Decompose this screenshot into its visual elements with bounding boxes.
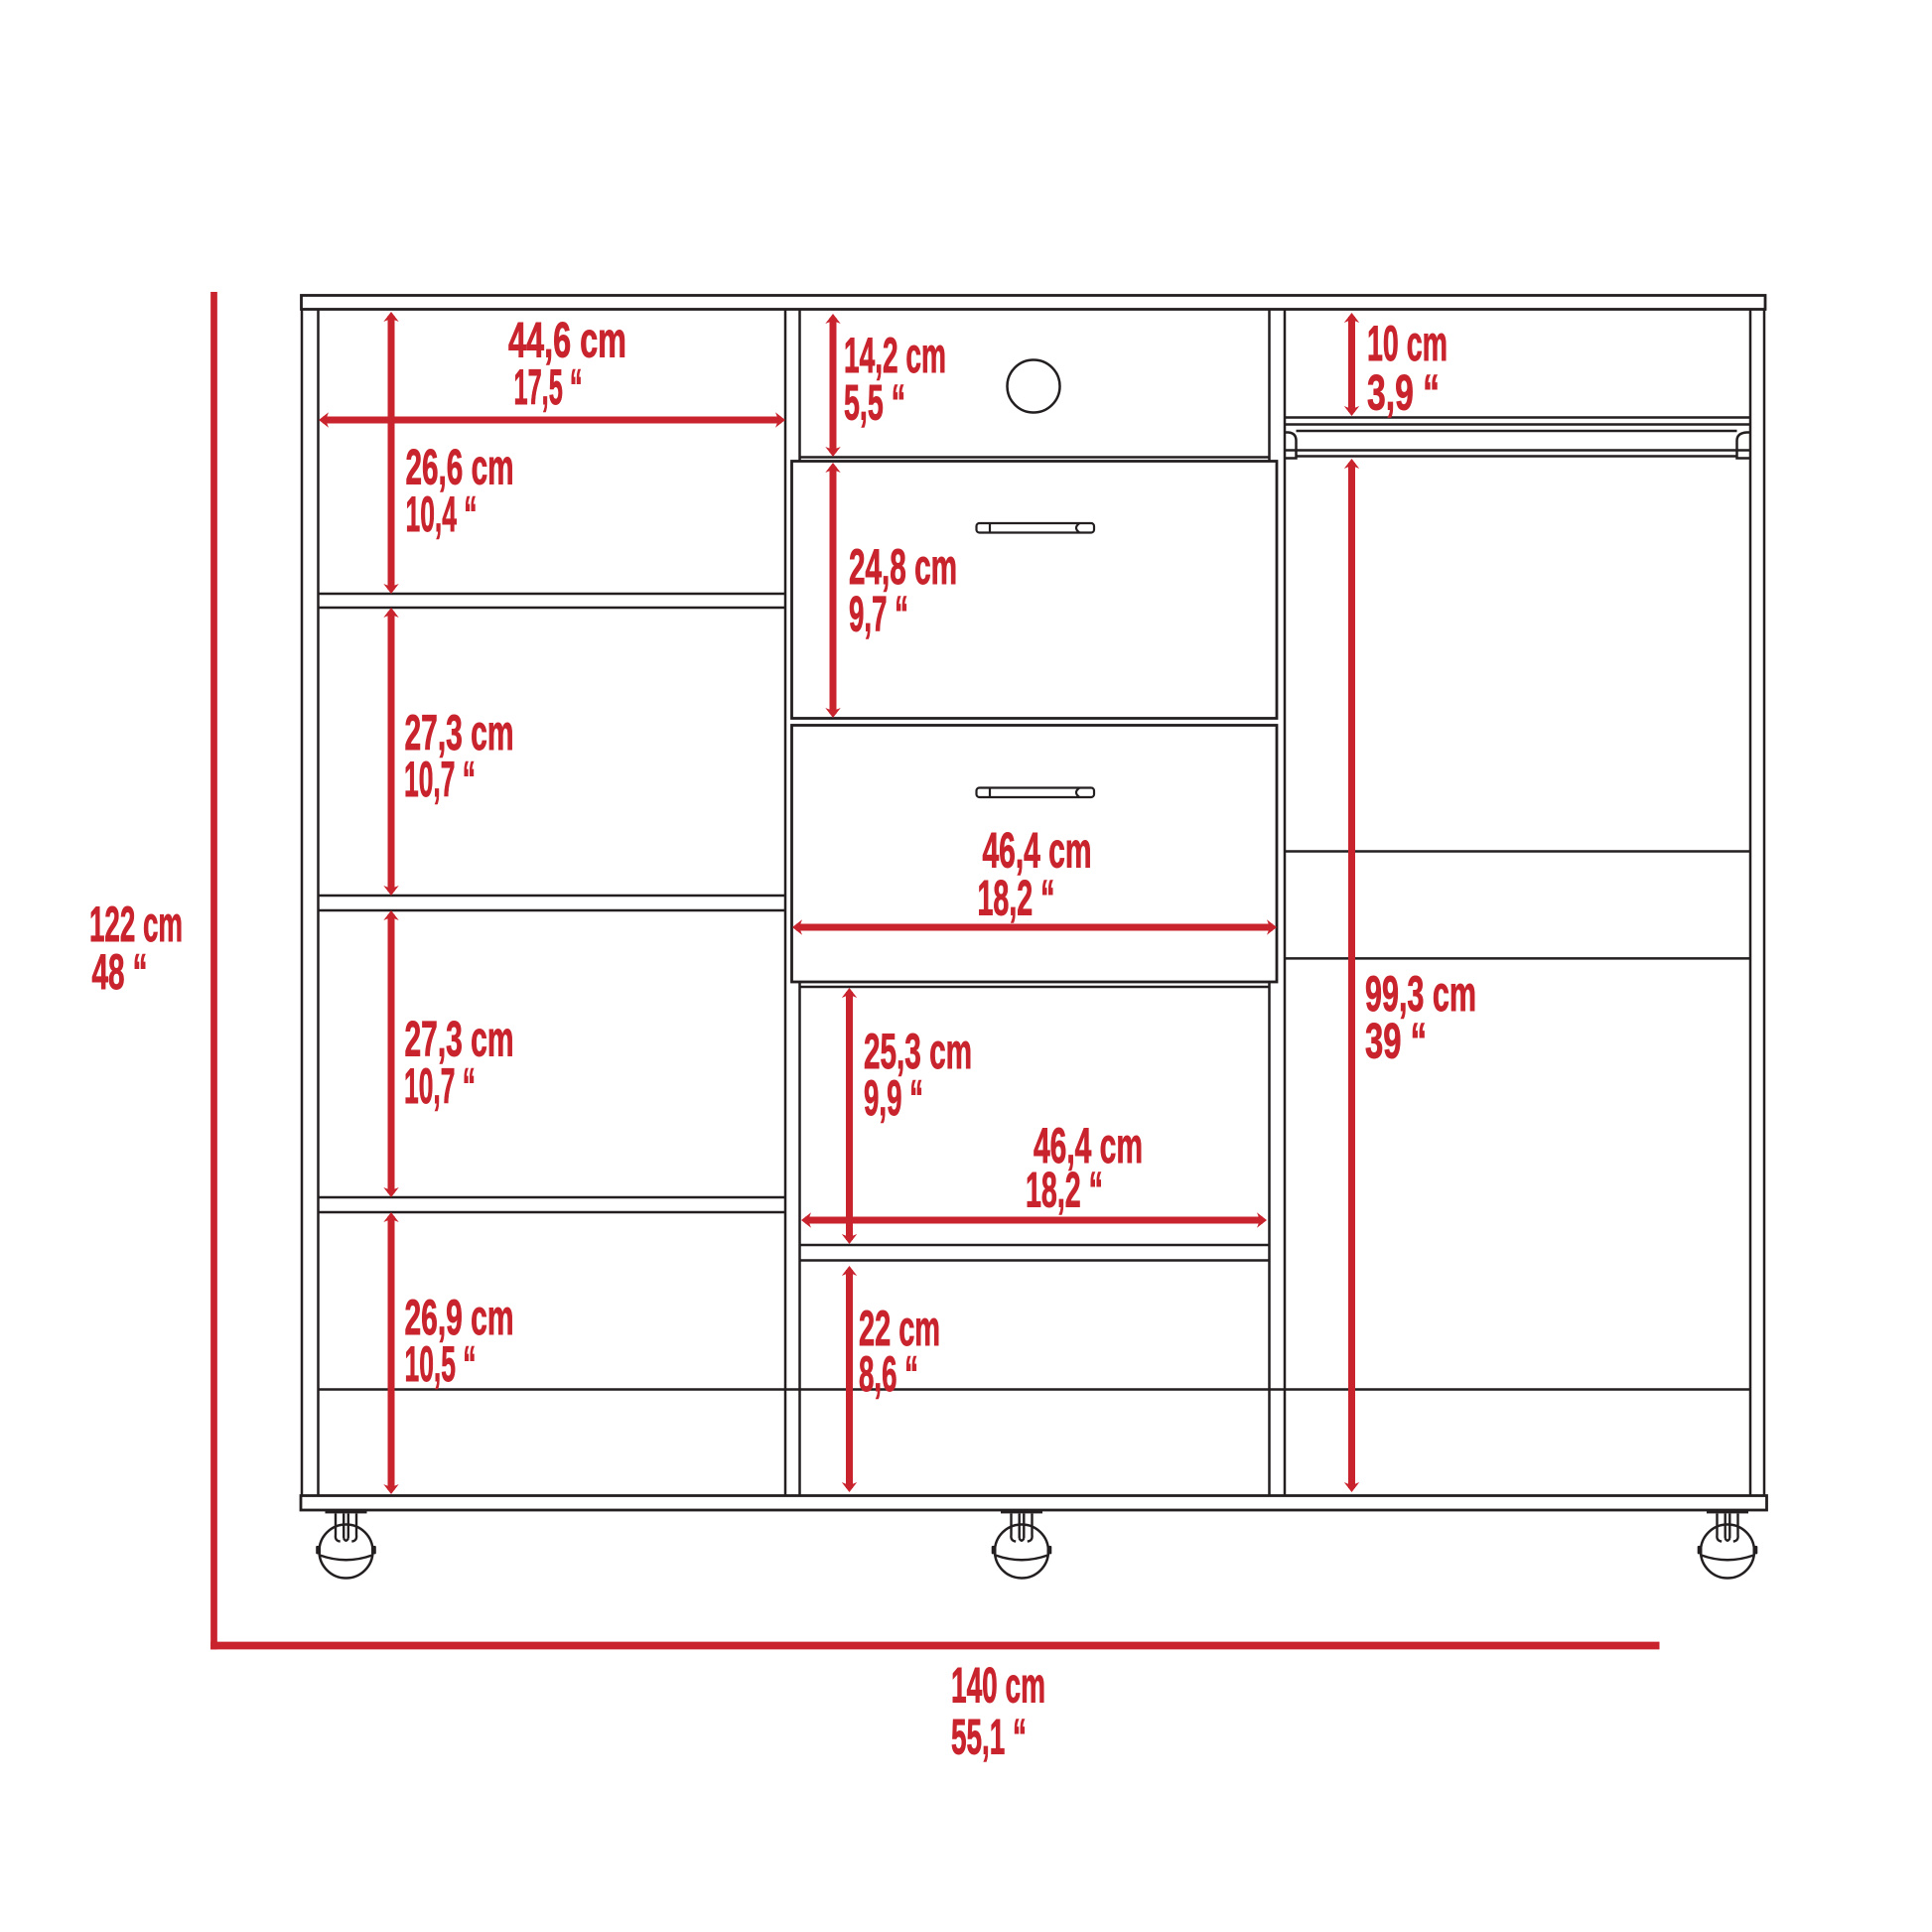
svg-text:5,5 “: 5,5 “ — [844, 374, 905, 431]
svg-text:55,1 “: 55,1 “ — [951, 1709, 1027, 1765]
svg-text:10,4 “: 10,4 “ — [406, 485, 478, 542]
svg-text:10 cm: 10 cm — [1367, 315, 1448, 371]
svg-text:10,7 “: 10,7 “ — [404, 751, 476, 807]
svg-text:10,7 “: 10,7 “ — [404, 1057, 476, 1114]
svg-text:9,7 “: 9,7 “ — [849, 586, 908, 642]
svg-text:48 “: 48 “ — [92, 943, 148, 1000]
svg-text:3,9 “: 3,9 “ — [1367, 364, 1440, 421]
svg-text:39 “: 39 “ — [1365, 1013, 1427, 1069]
svg-text:10,5 “: 10,5 “ — [405, 1335, 477, 1392]
svg-text:8,6 “: 8,6 “ — [859, 1345, 918, 1402]
svg-text:140 cm: 140 cm — [951, 1657, 1045, 1714]
svg-text:18,2 “: 18,2 “ — [978, 870, 1055, 926]
svg-text:18,2 “: 18,2 “ — [1026, 1162, 1103, 1218]
svg-text:9,9 “: 9,9 “ — [864, 1069, 923, 1126]
svg-text:17,5 “: 17,5 “ — [514, 358, 583, 415]
